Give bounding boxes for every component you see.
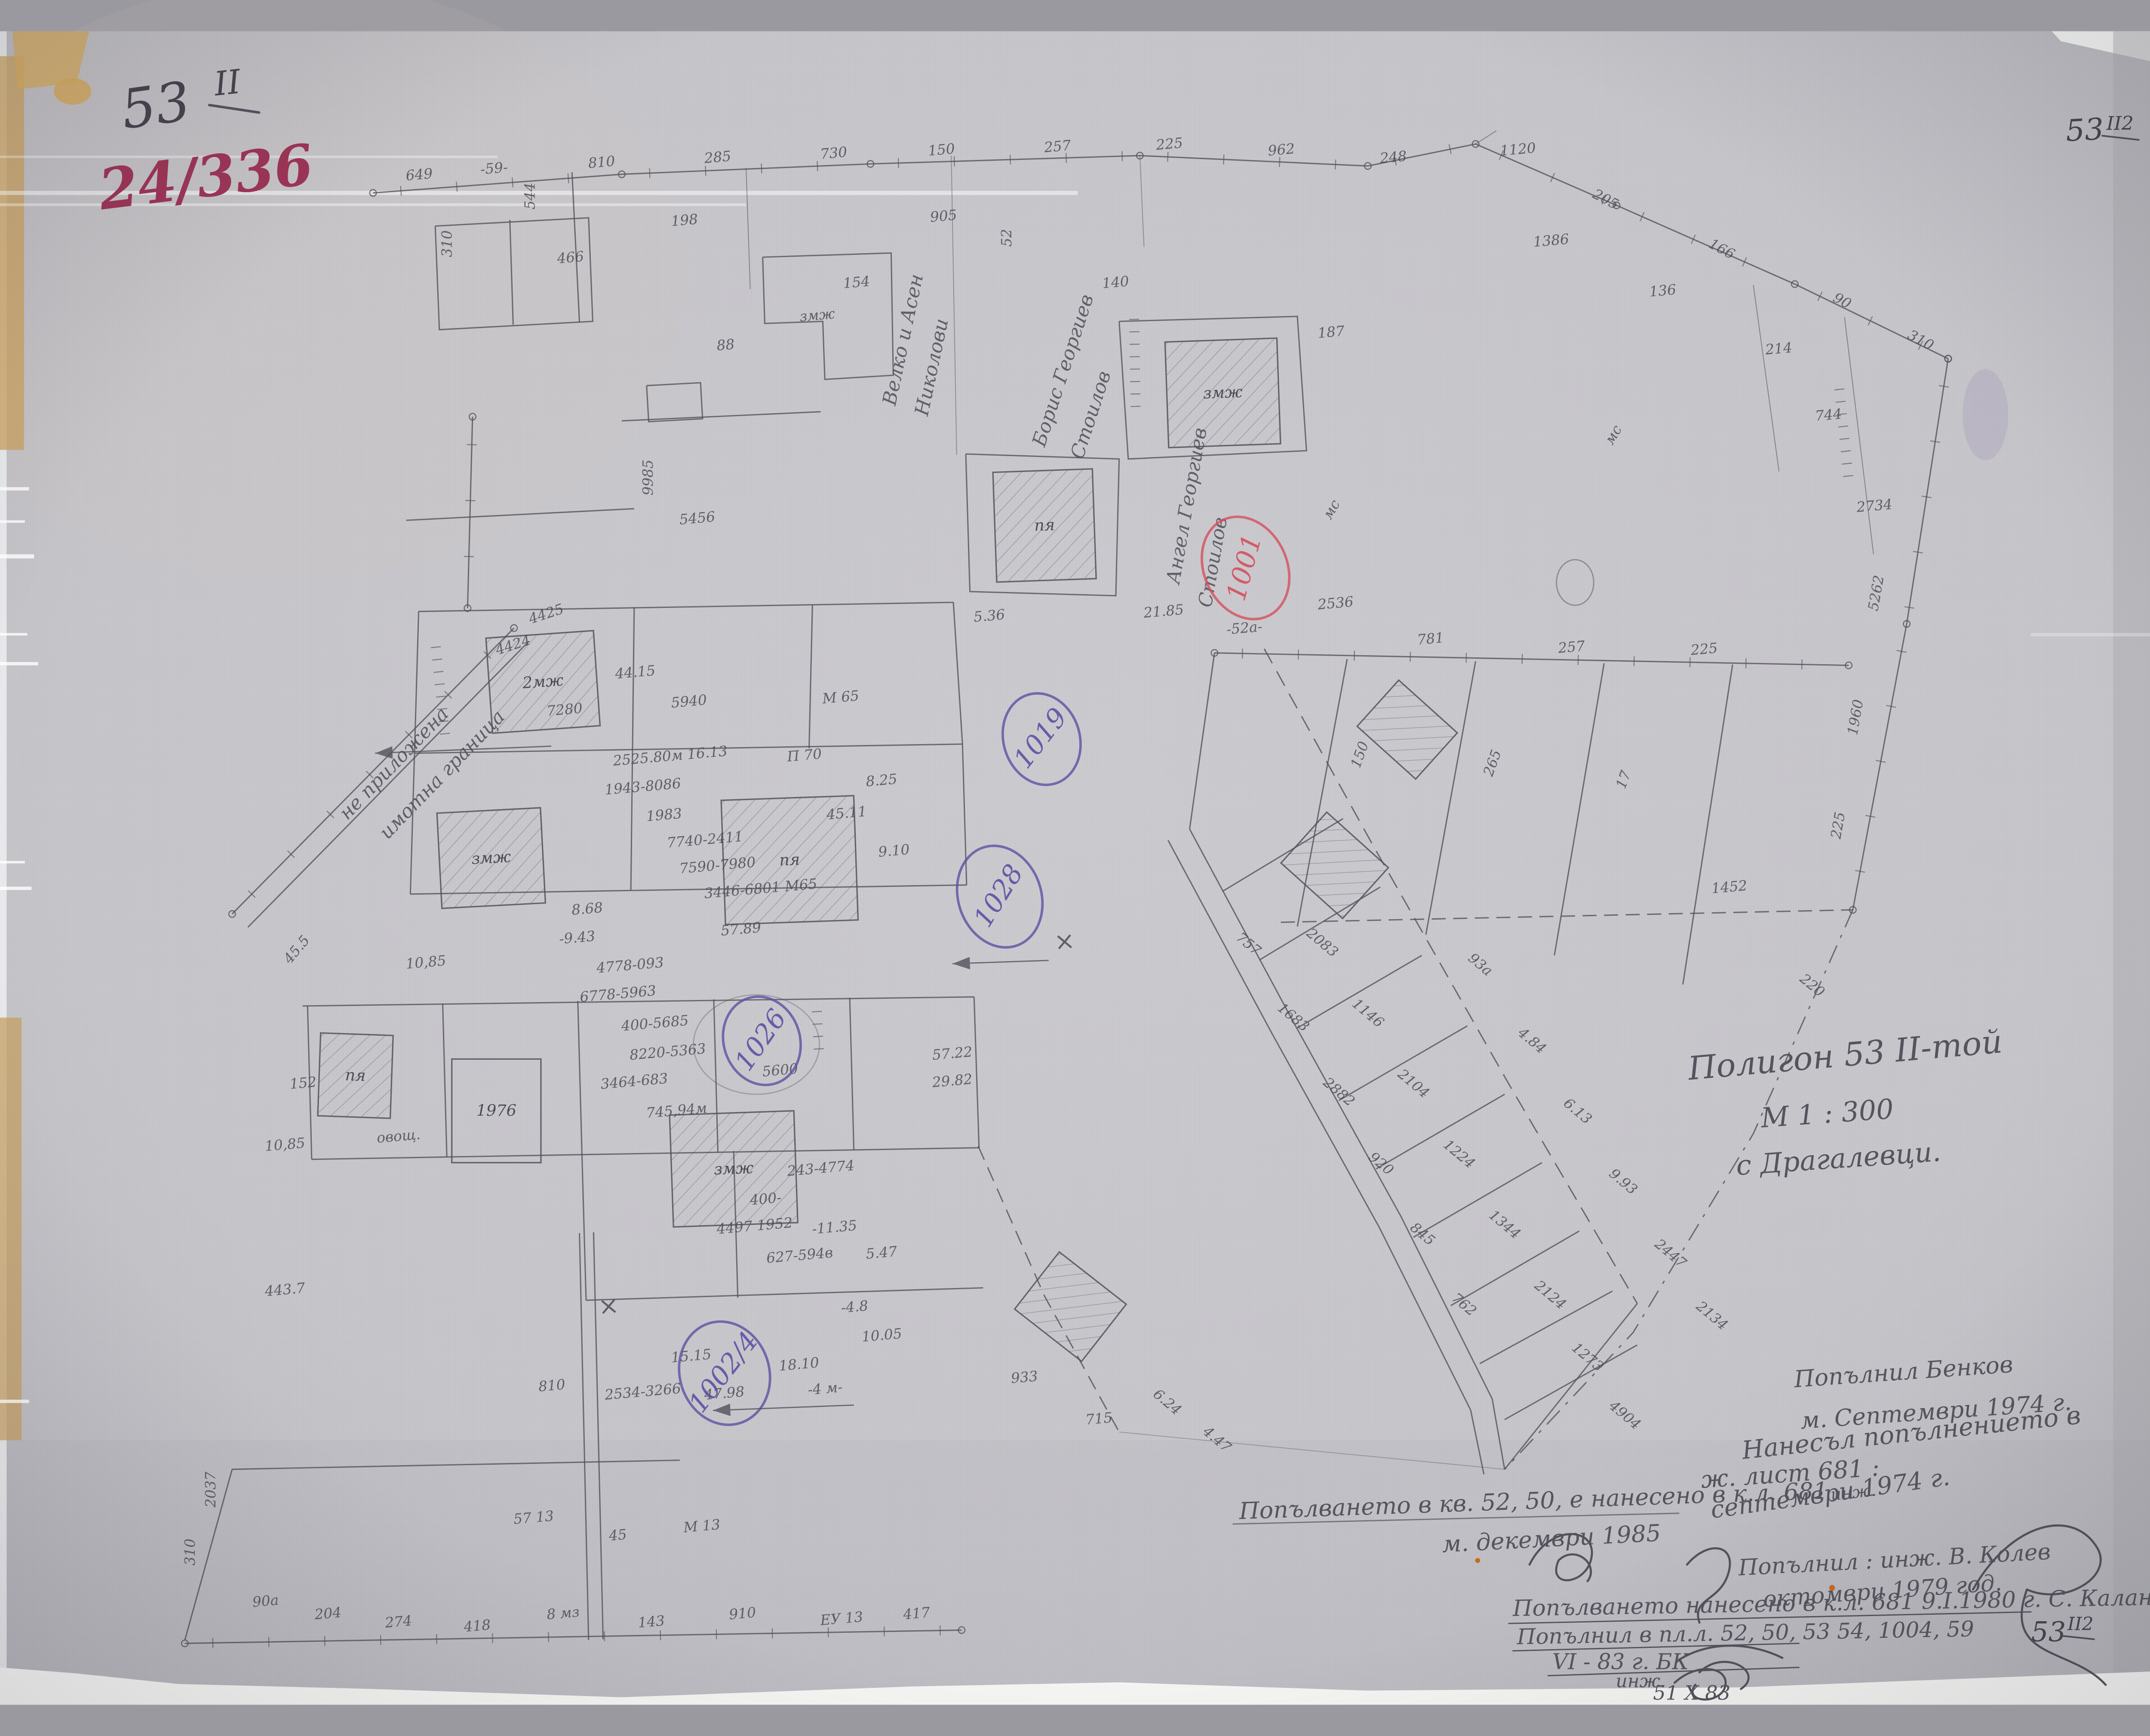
survey-tick <box>467 445 477 445</box>
dimension-label: 214 <box>1764 339 1793 358</box>
dimension-label: 5.36 <box>973 606 1006 625</box>
survey-tick <box>1010 155 1010 165</box>
survey-tick <box>1279 157 1280 167</box>
dimension-label: 248 <box>1379 148 1407 166</box>
dimension-label: 310 <box>439 230 455 258</box>
dimension-label: 9.10 <box>878 841 910 860</box>
cadastral-sheet: 2мжзмжпяпя1976змжзмжпя 649-59-8102857301… <box>0 0 2150 1736</box>
dimension-label: 7280 <box>546 700 583 719</box>
building-label: змж <box>713 1159 754 1178</box>
survey-tick <box>761 163 762 173</box>
dimension-label: 9985 <box>640 460 656 495</box>
building: пя <box>993 469 1096 582</box>
dimension-label: 1386 <box>1533 231 1569 250</box>
dimension-label: 198 <box>670 211 699 230</box>
survey-tick <box>1335 159 1336 169</box>
building-label: пя <box>1034 515 1055 535</box>
dimension-label: 274 <box>384 1613 413 1631</box>
dimension-label: 1983 <box>645 805 682 825</box>
dimension-label: 8 мз <box>546 1604 580 1623</box>
rust-dot-2 <box>1475 1558 1480 1563</box>
dimension-label: 150 <box>928 141 956 159</box>
survey-tick <box>954 156 955 166</box>
dimension-label: 52 <box>998 229 1015 247</box>
sheet-number-bottom-right-sup: II2 <box>2067 1614 2093 1635</box>
dimension-label: 204 <box>313 1604 342 1623</box>
building-label: пя <box>779 850 800 869</box>
building: пя <box>318 1033 393 1119</box>
dimension-label: 1120 <box>1499 140 1536 159</box>
dimension-label: 400- <box>749 1189 782 1208</box>
dimension-label: 187 <box>1317 323 1345 341</box>
building-label: 1976 <box>476 1101 516 1120</box>
dimension-label: 57.22 <box>931 1043 973 1063</box>
dimension-label: 10.05 <box>861 1325 903 1345</box>
dimension-label: 466 <box>556 248 585 267</box>
dimension-label: 2734 <box>1855 496 1893 515</box>
dimension-label: М 65 <box>821 687 860 707</box>
survey-tick <box>465 500 475 501</box>
dimension-label: 1452 <box>1711 877 1748 897</box>
building-label: змж <box>471 847 511 868</box>
building: змж <box>670 1111 798 1227</box>
dimension-label: -59- <box>480 159 509 178</box>
building: змж <box>1165 338 1281 448</box>
building-label: 2мж <box>522 671 564 692</box>
dimension-label: 2536 <box>1317 593 1354 613</box>
ink-smudge <box>1963 369 2008 460</box>
dimension-label: 10,85 <box>405 952 447 972</box>
dimension-label: 257 <box>1043 137 1072 156</box>
dimension-label: -4 м- <box>807 1379 843 1398</box>
dimension-label: 88 <box>716 336 735 354</box>
sheet-number-top-right: 53 <box>2065 112 2104 149</box>
building-label: змж <box>1203 383 1243 402</box>
building: змж <box>437 808 545 908</box>
survey-tick <box>1223 154 1224 164</box>
building-label: пя <box>345 1066 366 1085</box>
dimension-label: -4.8 <box>840 1297 869 1316</box>
dimension-label: 285 <box>703 148 732 166</box>
dimension-label: 10,85 <box>264 1135 306 1154</box>
survey-tick <box>817 161 818 171</box>
dimension-label: 225 <box>1155 135 1184 153</box>
dimension-label: 962 <box>1267 141 1296 159</box>
dimension-label: 2037 <box>203 1472 219 1508</box>
dimension-label: 136 <box>1649 281 1677 300</box>
tape-strip-top-left <box>0 56 24 450</box>
dimension-label: 140 <box>1101 273 1130 291</box>
survey-tick <box>705 166 706 176</box>
right-edge-shade <box>2113 31 2150 1705</box>
scan-viewport: 2мжзмжпяпя1976змжзмжпя 649-59-8102857301… <box>0 0 2150 1736</box>
dimension-label: 810 <box>538 1376 566 1395</box>
dimension-label: 18.10 <box>778 1354 820 1374</box>
dimension-label: -52а- <box>1226 618 1263 638</box>
dimension-label: 544 <box>522 183 538 210</box>
hachure-tick <box>812 1012 822 1012</box>
dimension-label: 5.47 <box>865 1243 898 1262</box>
dimension-label: 90а <box>252 1592 279 1610</box>
dimension-label: 910 <box>728 1604 757 1623</box>
tape-spot <box>54 78 91 105</box>
dimension-label: 933 <box>1010 1368 1038 1386</box>
dimension-label: М 13 <box>682 1516 721 1536</box>
dimension-label: 257 <box>1557 638 1586 656</box>
dimension-label: × <box>1053 926 1076 957</box>
survey-tick <box>649 168 650 178</box>
dimension-label: 57.89 <box>720 919 762 939</box>
dimension-label: 8.25 <box>865 771 898 790</box>
survey-tick <box>1122 151 1122 161</box>
dimension-label: 418 <box>463 1616 491 1635</box>
dimension-label: 730 <box>820 144 848 162</box>
tape-strip-bottom-left <box>0 1018 21 1440</box>
dimension-label: × <box>597 1290 620 1321</box>
dimension-label: 5940 <box>670 692 707 711</box>
sheet-number-top-left: 53 <box>117 70 194 141</box>
dimension-label: 154 <box>842 273 871 291</box>
dimension-label: 225 <box>1689 640 1718 658</box>
survey-tick <box>1066 153 1066 163</box>
dimension-label: 152 <box>289 1073 317 1092</box>
dimension-label: 781 <box>1416 629 1445 648</box>
dimension-label: П 70 <box>786 745 823 765</box>
dimension-label: 649 <box>405 165 433 184</box>
dimension-label: 45 <box>608 1526 627 1544</box>
dimension-label: 310 <box>182 1539 198 1566</box>
dimension-label: 8.68 <box>571 899 604 918</box>
survey-tick <box>1167 152 1168 162</box>
dimension-label: 57 13 <box>513 1508 555 1527</box>
dimension-label: 905 <box>929 207 958 225</box>
dimension-label: змж <box>799 305 835 325</box>
dimension-label: 15.15 <box>670 1346 712 1366</box>
dimension-label: 810 <box>587 153 616 172</box>
survey-tick <box>898 158 899 168</box>
dimension-label: 417 <box>902 1604 931 1623</box>
sheet-number-top-left-sup: II <box>212 62 243 104</box>
survey-tick <box>464 556 474 557</box>
dimension-label: 744 <box>1814 406 1843 424</box>
dimension-label: -9.43 <box>559 928 596 947</box>
sheet-number-top-right-sup: II2 <box>2106 113 2134 135</box>
dimension-label: 143 <box>637 1613 666 1631</box>
dimension-label: 715 <box>1085 1409 1113 1428</box>
dimension-label: 5456 <box>679 509 716 528</box>
note-vi-83: VI - 83 г. БК <box>1552 1649 1689 1674</box>
